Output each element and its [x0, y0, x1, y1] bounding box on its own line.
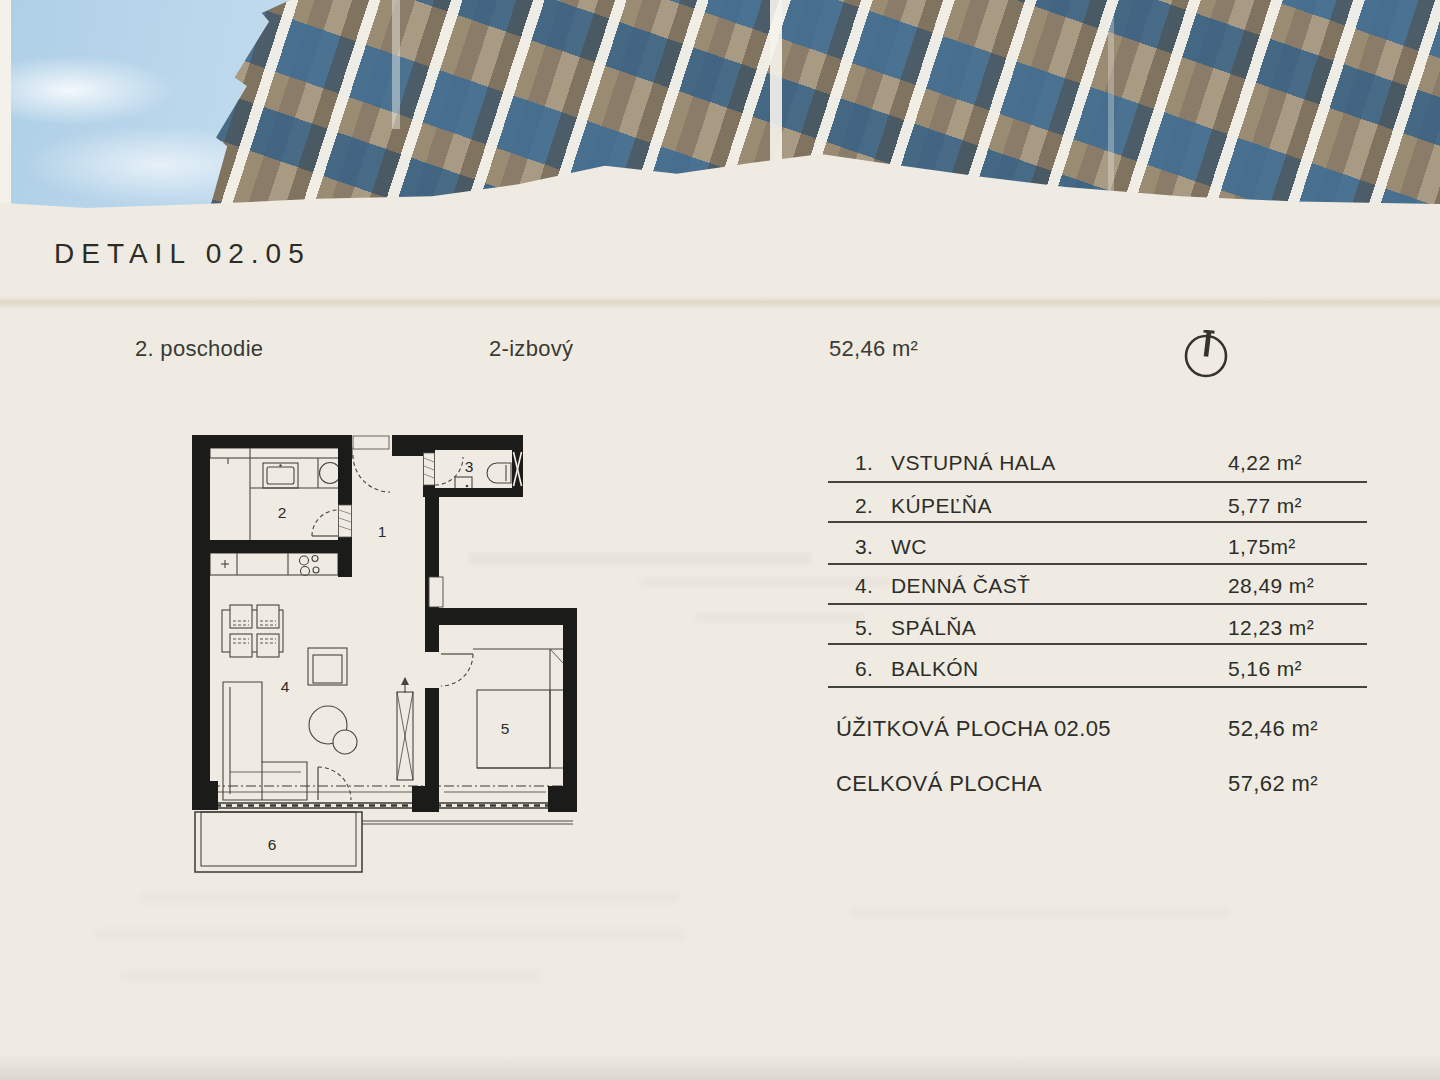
- plan-label-living: 4: [281, 678, 290, 695]
- facade-joint: [392, 0, 400, 129]
- summary-area: 52,46 m²: [1228, 716, 1318, 742]
- room-number: 3.: [855, 535, 873, 559]
- room-area: 1,75m²: [1228, 535, 1296, 559]
- scan-bleed-smudge: [140, 892, 680, 904]
- room-area: 5,77 m²: [1228, 494, 1302, 518]
- table-divider: [828, 603, 1367, 605]
- scan-bleed-smudge: [120, 970, 540, 982]
- room-area: 12,23 m²: [1228, 616, 1314, 640]
- table-divider: [828, 686, 1367, 688]
- info-total-area: 52,46 m²: [829, 336, 918, 362]
- room-name: SPÁLŇA: [891, 616, 976, 640]
- floor-plan: 1 2 3 4 5 6: [185, 425, 595, 880]
- plan-label-bathroom: 2: [278, 504, 287, 521]
- balcony-outline: [195, 812, 362, 872]
- table-row: 1. VSTUPNÁ HALA 4,22 m²: [828, 451, 1367, 477]
- table-row: 6. BALKÓN 5,16 m²: [828, 657, 1367, 683]
- scan-bleed-smudge: [470, 553, 810, 566]
- scan-bleed-smudge: [695, 612, 865, 623]
- scan-bleed-smudge: [95, 928, 685, 940]
- summary-area: 57,62 m²: [1228, 771, 1318, 797]
- table-divider: [828, 481, 1367, 483]
- room-area: 4,22 m²: [1228, 451, 1302, 475]
- plan-label-hall: 1: [378, 523, 387, 540]
- room-name: DENNÁ ČASŤ: [891, 574, 1030, 598]
- scan-fold-line: [0, 296, 1440, 309]
- north-arrow-icon: [1180, 330, 1232, 382]
- summary-row-total-area: CELKOVÁ PLOCHA 57,62 m²: [828, 771, 1367, 799]
- brochure-page: { "header": { "title": "DETAIL 02.05" },…: [0, 0, 1440, 1080]
- summary-label: ÚŽITKOVÁ PLOCHA 02.05: [836, 716, 1111, 742]
- room-number: 2.: [855, 494, 873, 518]
- room-name: WC: [891, 535, 927, 559]
- page-bottom-shadow: [0, 1054, 1440, 1080]
- table-divider: [828, 563, 1367, 565]
- facade-joint: [1108, 0, 1114, 215]
- window-lines: [210, 786, 573, 824]
- table-row: 2. KÚPEĽŇA 5,77 m²: [828, 494, 1367, 520]
- plan-label-balcony: 6: [268, 836, 277, 853]
- summary-row-usable-area: ÚŽITKOVÁ PLOCHA 02.05 52,46 m²: [828, 716, 1367, 744]
- summary-label: CELKOVÁ PLOCHA: [836, 771, 1042, 797]
- info-floor: 2. poschodie: [135, 336, 263, 362]
- room-name: KÚPEĽŇA: [891, 494, 992, 518]
- table-row: 4. DENNÁ ČASŤ 28,49 m²: [828, 574, 1367, 600]
- room-number: 6.: [855, 657, 873, 681]
- page-margin: [0, 0, 11, 215]
- room-area: 28,49 m²: [1228, 574, 1314, 598]
- room-number: 1.: [855, 451, 873, 475]
- table-divider: [828, 643, 1367, 645]
- table-row: 5. SPÁLŇA 12,23 m²: [828, 616, 1367, 642]
- scan-bleed-smudge: [640, 576, 890, 587]
- plan-label-wc: 3: [465, 458, 474, 475]
- building-photo: [0, 0, 1440, 215]
- room-name: BALKÓN: [891, 657, 979, 681]
- scan-bleed-smudge: [850, 907, 1230, 918]
- plan-label-bedroom: 5: [501, 720, 510, 737]
- table-divider: [828, 521, 1367, 523]
- info-unit-type: 2-izbový: [489, 336, 573, 362]
- table-row: 3. WC 1,75m²: [828, 535, 1367, 561]
- room-area: 5,16 m²: [1228, 657, 1302, 681]
- page-title: DETAIL 02.05: [54, 238, 311, 270]
- room-name: VSTUPNÁ HALA: [891, 451, 1056, 475]
